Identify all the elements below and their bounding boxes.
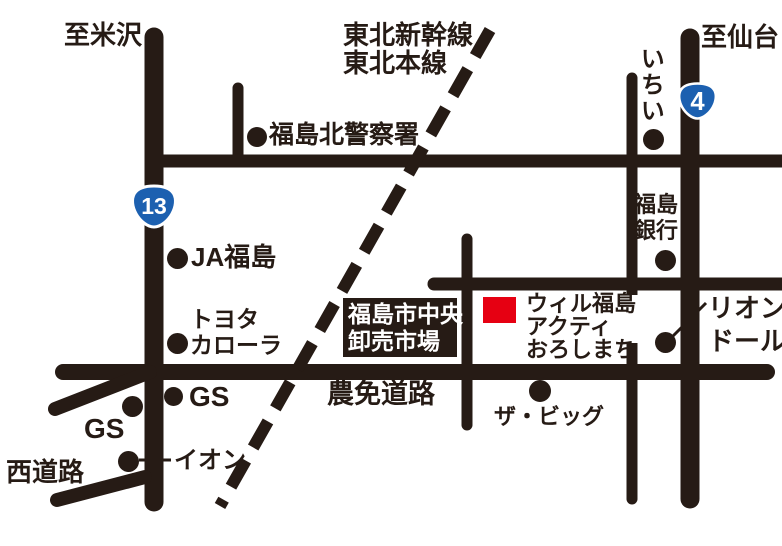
direction-to-yonezawa: 至米沢 xyxy=(64,22,142,49)
toyota-corolla-label: トヨタ カローラ xyxy=(190,306,282,358)
gs-left-dot xyxy=(122,396,143,417)
the-big-label: ザ・ビッグ xyxy=(494,405,604,428)
liondor-dot xyxy=(655,332,676,353)
route-4-badge: 4 xyxy=(677,79,718,123)
railway-label-line2: 東北本線 xyxy=(343,49,473,77)
destination-marker xyxy=(483,297,516,323)
fukushima-bank-dot xyxy=(655,250,676,271)
liondor-label: リオン ドール xyxy=(708,292,782,358)
police-dot xyxy=(247,127,267,147)
destination-label-line2: アクティ xyxy=(526,315,636,338)
toyota-corolla-label-line2: カローラ xyxy=(190,332,282,358)
aeon-label: イオン xyxy=(174,448,246,473)
police-label: 福島北警察署 xyxy=(269,122,419,148)
gs-left-label: GS xyxy=(84,414,124,443)
nishi-road-label: 西道路 xyxy=(6,459,84,486)
liondor-label-line1: リオン xyxy=(708,292,782,325)
gs-right-label: GS xyxy=(189,382,229,411)
market-label-line2: 卸売市場 xyxy=(348,328,457,355)
route-13-badge: 13 xyxy=(130,183,178,230)
railway-label: 東北新幹線 東北本線 xyxy=(343,21,473,77)
access-map: 至米沢 東北新幹線 東北本線 至仙台 13 4 福島北警察署 いちい JA福島 … xyxy=(0,0,782,546)
destination-label: ウィル福島 アクティ おろしまち xyxy=(526,292,636,361)
road-network xyxy=(0,0,782,546)
route-13-badge-number: 13 xyxy=(141,193,167,219)
ja-fukushima-label: JA福島 xyxy=(191,244,276,271)
nomen-road-label: 農免道路 xyxy=(327,380,435,408)
market-label-line1: 福島市中央 xyxy=(348,301,457,328)
route-4-badge-number: 4 xyxy=(690,88,705,116)
liondor-label-line2: ドール xyxy=(708,325,782,358)
fukushima-bank-label-line2: 銀行 xyxy=(634,218,678,244)
ichii-dot xyxy=(643,129,664,150)
aeon-dot xyxy=(118,451,139,472)
fukushima-bank-label: 福島 銀行 xyxy=(634,192,678,244)
the-big-dot xyxy=(529,380,551,402)
fukushima-bank-label-line1: 福島 xyxy=(634,192,678,218)
gs-right-dot xyxy=(164,387,183,406)
ja-fukushima-dot xyxy=(167,248,188,269)
destination-label-line3: おろしまち xyxy=(526,338,636,361)
toyota-corolla-label-line1: トヨタ xyxy=(190,306,282,332)
market-label-box: 福島市中央 卸売市場 xyxy=(343,298,457,357)
toyota-corolla-dot xyxy=(167,333,188,354)
ichii-label: いちい xyxy=(637,46,662,124)
railway-label-line1: 東北新幹線 xyxy=(343,21,473,49)
destination-label-line1: ウィル福島 xyxy=(526,292,636,315)
direction-to-sendai: 至仙台 xyxy=(701,24,779,51)
